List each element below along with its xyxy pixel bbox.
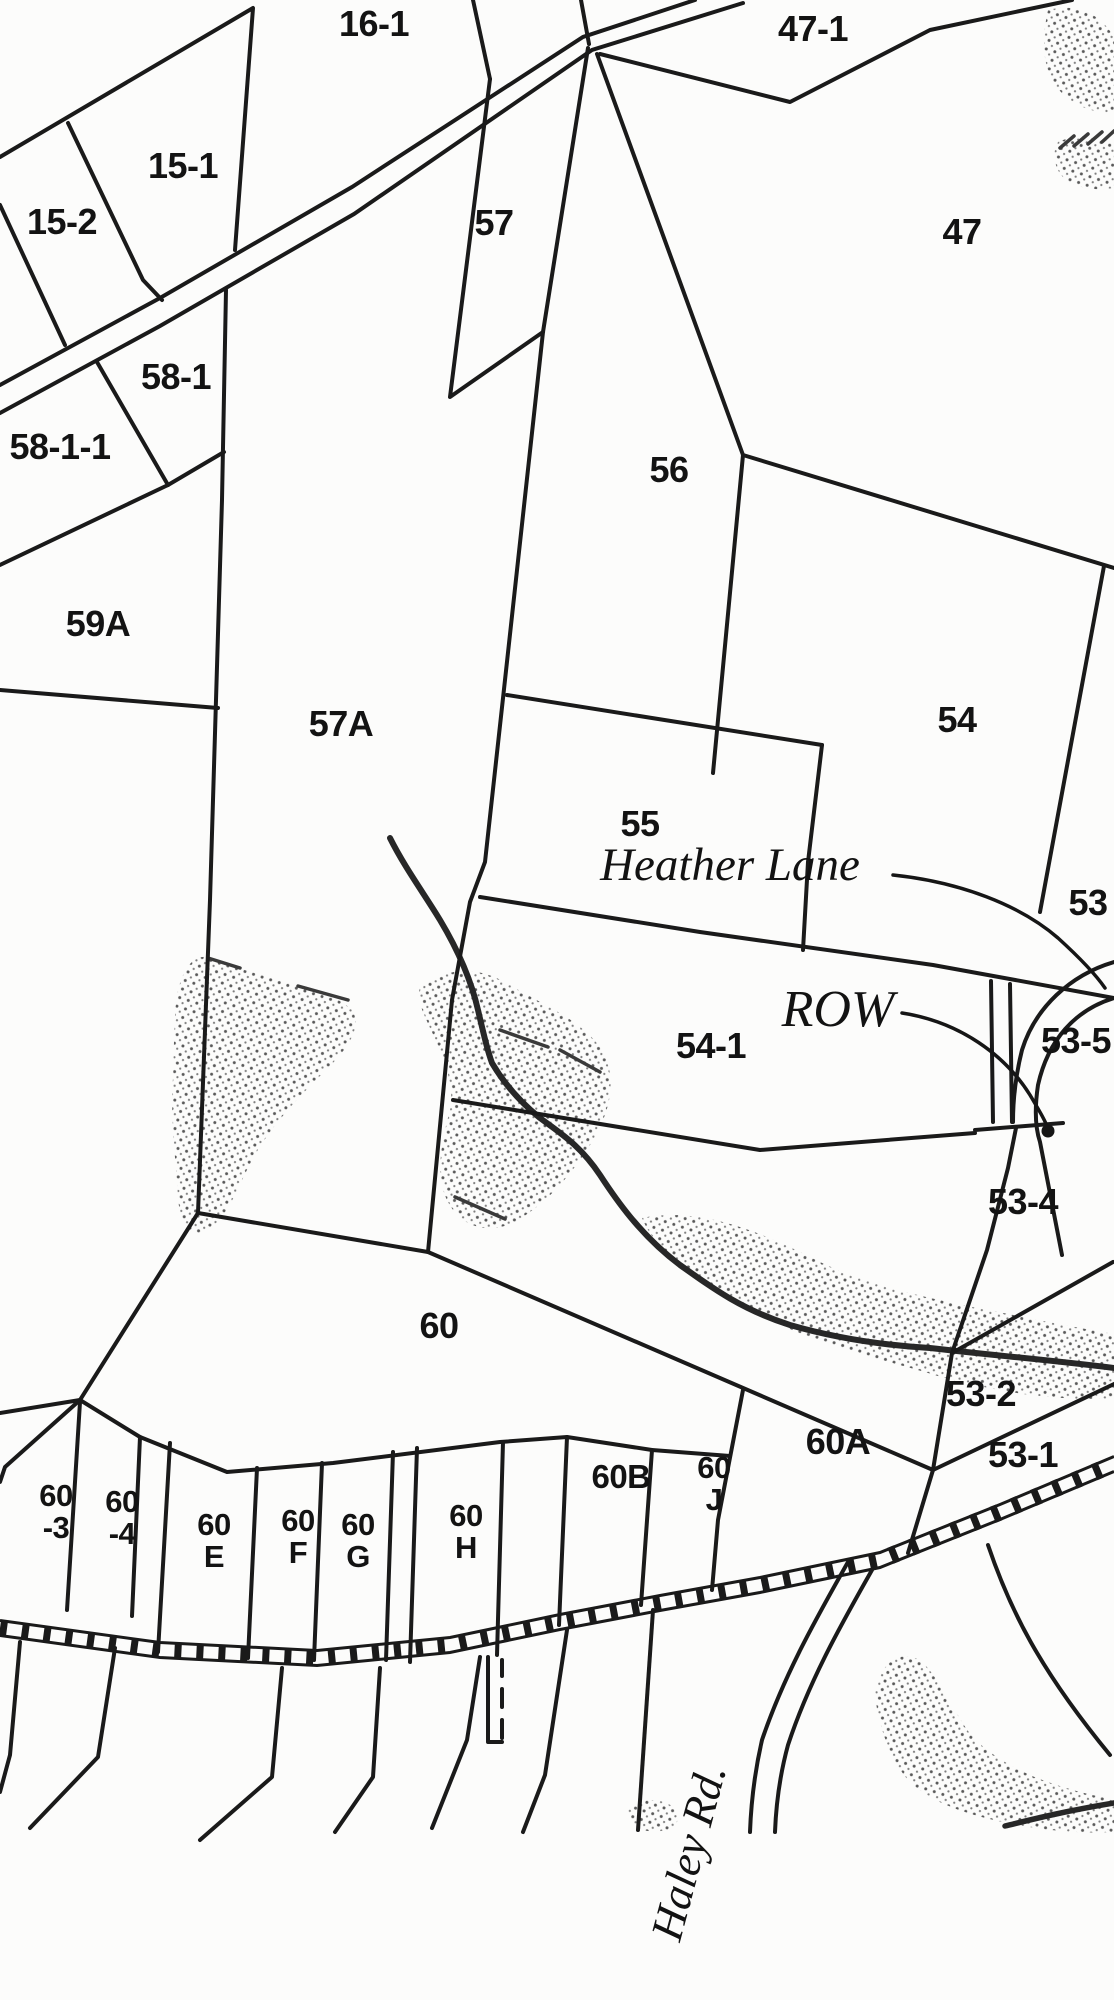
parcel-label-55: 55 xyxy=(620,803,660,844)
parcel-label-60G: 60G xyxy=(341,1507,374,1574)
parcel-map-page: 16-147-115-115-2574758-158-1-15659A57A54… xyxy=(0,0,1114,2000)
road-label-row: ROW xyxy=(781,981,899,1038)
parcel-label-53: 53 xyxy=(1068,882,1107,923)
parcel-label-53-5: 53-5 xyxy=(1041,1020,1112,1061)
parcel-label-53-4: 53-4 xyxy=(988,1181,1059,1222)
parcel-label-59A: 59A xyxy=(66,603,131,644)
parcel-label-60-3: 60-3 xyxy=(39,1478,72,1545)
parcel-label-47: 47 xyxy=(942,211,981,252)
parcel-label-54: 54 xyxy=(937,699,977,740)
parcel-label-15-1: 15-1 xyxy=(148,145,219,186)
parcel-label-56: 56 xyxy=(649,449,688,490)
parcel-label-16-1: 16-1 xyxy=(339,3,410,44)
parcel-map: 16-147-115-115-2574758-158-1-15659A57A54… xyxy=(0,0,1114,2000)
parcel-label-53-1: 53-1 xyxy=(988,1434,1059,1475)
parcel-label-58-1: 58-1 xyxy=(141,356,212,397)
parcel-label-60: 60 xyxy=(419,1305,458,1346)
row-strip-east xyxy=(1010,984,1012,1122)
parcel-label-60-4: 60-4 xyxy=(105,1484,138,1551)
road-label-heather-lane: Heather Lane xyxy=(599,839,860,891)
parcel-label-53-2: 53-2 xyxy=(946,1373,1016,1414)
parcel-label-54-1: 54-1 xyxy=(676,1025,747,1066)
parcel-label-57: 57 xyxy=(474,202,513,243)
parcel-label-60B: 60B xyxy=(591,1458,650,1495)
parcel-label-60A: 60A xyxy=(806,1421,871,1462)
parcel-label-15-2: 15-2 xyxy=(27,201,97,242)
parcel-label-57A: 57A xyxy=(309,703,374,744)
row-leader-dot xyxy=(1042,1125,1055,1138)
parcel-label-47-1: 47-1 xyxy=(778,8,849,49)
parcel-label-58-1-1: 58-1-1 xyxy=(9,426,111,467)
